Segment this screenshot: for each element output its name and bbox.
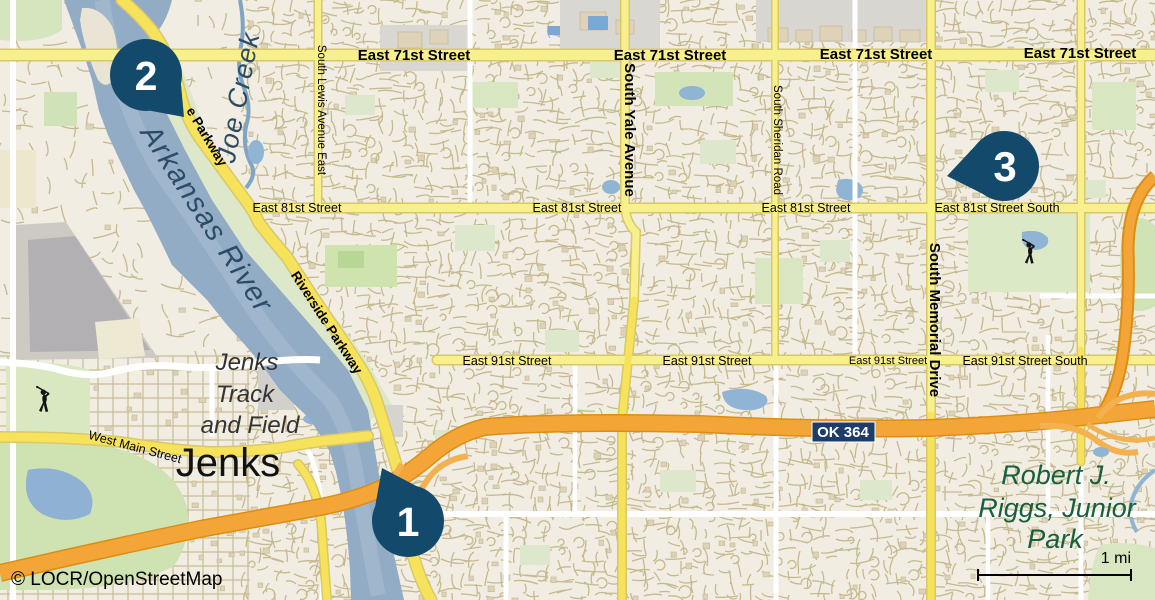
svg-text:Jenks: Jenks bbox=[176, 441, 281, 485]
svg-text:Riggs, Junior: Riggs, Junior bbox=[978, 493, 1137, 523]
svg-text:South Memorial Drive: South Memorial Drive bbox=[926, 243, 943, 397]
svg-text:Track: Track bbox=[216, 381, 276, 408]
svg-text:East 71st Street: East 71st Street bbox=[358, 47, 471, 64]
svg-text:East 71st Street: East 71st Street bbox=[614, 47, 727, 64]
svg-text:1 mi: 1 mi bbox=[1101, 550, 1131, 567]
svg-text:East 81st Street: East 81st Street bbox=[533, 201, 622, 215]
svg-text:© LOCR/OpenStreetMap: © LOCR/OpenStreetMap bbox=[11, 569, 222, 590]
svg-text:1: 1 bbox=[397, 499, 420, 545]
svg-text:East 91st Street South: East 91st Street South bbox=[962, 354, 1087, 368]
svg-text:East 91st Street: East 91st Street bbox=[663, 354, 752, 368]
svg-text:East 81st Street: East 81st Street bbox=[253, 201, 342, 215]
svg-text:South Sheridan Road: South Sheridan Road bbox=[771, 85, 783, 195]
svg-text:Jenks: Jenks bbox=[215, 349, 279, 376]
svg-text:East 71st Street: East 71st Street bbox=[820, 46, 933, 63]
svg-text:South Lewis Avenue East: South Lewis Avenue East bbox=[315, 45, 327, 176]
svg-text:East 81st Street South: East 81st Street South bbox=[934, 201, 1059, 215]
svg-text:Park: Park bbox=[1027, 524, 1084, 554]
svg-text:3: 3 bbox=[993, 143, 1016, 190]
svg-text:South Yale Avenue: South Yale Avenue bbox=[621, 63, 638, 197]
svg-text:and Field: and Field bbox=[201, 412, 300, 439]
svg-text:East 81st Street: East 81st Street bbox=[762, 201, 851, 215]
svg-text:East 91st Street: East 91st Street bbox=[849, 355, 927, 367]
svg-text:OK 364: OK 364 bbox=[817, 424, 869, 441]
svg-text:Robert J.: Robert J. bbox=[1001, 460, 1111, 490]
svg-text:East 71st Street: East 71st Street bbox=[1024, 45, 1137, 62]
svg-text:2: 2 bbox=[135, 53, 158, 99]
svg-text:East 91st Street: East 91st Street bbox=[463, 354, 552, 368]
